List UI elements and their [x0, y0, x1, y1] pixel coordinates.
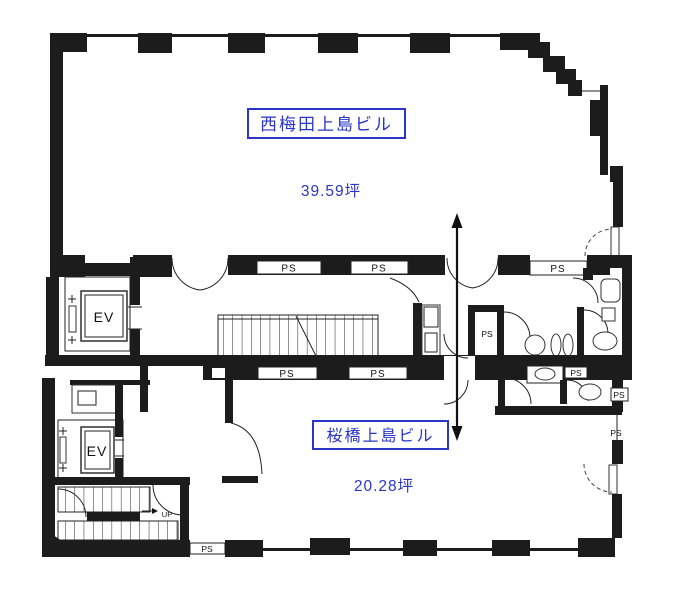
lower-partition	[222, 366, 262, 483]
stair-landing-divider	[87, 512, 140, 521]
emergency-door-leaf	[611, 227, 619, 257]
sink	[535, 368, 555, 380]
column	[590, 100, 608, 136]
double-door-left-swing	[172, 258, 200, 290]
ps-label: PS	[201, 544, 213, 554]
wash-basin	[601, 279, 620, 302]
toilet	[525, 335, 545, 355]
corridor-bottom-wall	[45, 355, 632, 366]
column	[492, 540, 530, 556]
lower-building-area: 20.28坪	[354, 477, 414, 495]
ps-label: PS	[550, 264, 565, 275]
floor-plan: PS PS PS EV	[0, 0, 681, 597]
elevator-lower: EV	[58, 385, 124, 480]
ps-label: PS	[613, 390, 625, 400]
upper-building-label: 西梅田上島ビル 39.59坪	[248, 109, 405, 200]
column	[610, 166, 623, 182]
ps-label: PS	[370, 369, 385, 380]
ps-label: PS	[279, 369, 294, 380]
service-door-leaf	[609, 465, 617, 494]
toilet	[593, 332, 617, 350]
door-swing	[390, 278, 419, 302]
counterweight	[69, 306, 76, 332]
column	[50, 255, 85, 277]
elevator-label: EV	[94, 309, 115, 325]
arrow-head-down	[452, 426, 463, 441]
column	[318, 33, 358, 53]
upper-building-area: 39.59坪	[301, 182, 361, 200]
top-wall	[50, 34, 538, 37]
floor-plan-svg: PS PS PS EV	[0, 0, 681, 597]
duct-closet	[413, 303, 440, 358]
double-door-right-swing	[200, 258, 228, 290]
column	[578, 538, 615, 557]
wc-door-left-swing	[447, 258, 473, 288]
urinal	[563, 334, 573, 356]
up-label: UP	[162, 510, 172, 519]
restrooms-upper: PS	[468, 268, 620, 358]
flow-arrow	[452, 213, 463, 441]
toilet	[579, 384, 601, 400]
emergency-door-swing	[585, 229, 612, 256]
column	[310, 538, 350, 555]
upper-building-name: 西梅田上島ビル	[260, 115, 393, 134]
up-arrow	[152, 508, 158, 514]
column	[50, 33, 87, 52]
wc-room-door-swing	[573, 278, 598, 303]
ps-label: PS	[481, 329, 493, 339]
stair-flight-upper	[58, 487, 150, 512]
room-door-swing	[231, 423, 262, 474]
column	[228, 33, 265, 53]
ps-label: PS	[610, 428, 622, 438]
service-door-swing	[584, 464, 612, 492]
cistern	[602, 308, 615, 321]
counterweight	[60, 437, 66, 463]
urinal	[551, 334, 561, 356]
column	[403, 540, 437, 556]
lower-building-name: 桜橋上島ビル	[326, 427, 434, 445]
column	[410, 33, 450, 53]
stairs-upper	[218, 315, 378, 357]
arrow-head-up	[452, 213, 463, 228]
column	[138, 33, 172, 53]
passage-opening	[444, 356, 475, 380]
ps-label: PS	[371, 264, 386, 275]
lower-building-label: 桜橋上島ビル 20.28坪	[313, 421, 448, 495]
stall-door-swing	[504, 312, 530, 338]
duct-closet	[72, 385, 118, 413]
ps-label: PS	[281, 264, 296, 275]
stair-treads	[218, 315, 378, 357]
ps-label: PS	[570, 368, 582, 378]
left-wall-upper	[50, 33, 63, 277]
stepped-corner	[528, 42, 603, 96]
bottom-wall: PS	[47, 538, 615, 557]
stair-flight-lower	[58, 521, 178, 540]
wc-door-right-swing	[472, 258, 498, 288]
elevator-label: EV	[87, 443, 108, 459]
